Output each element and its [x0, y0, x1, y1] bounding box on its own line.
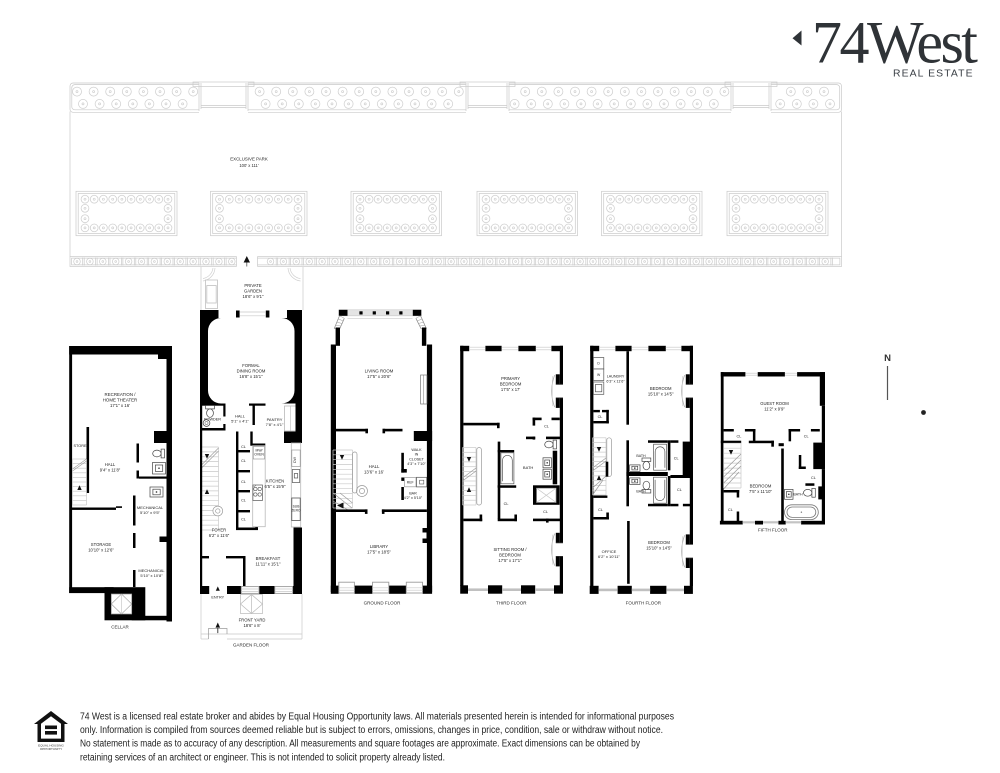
svg-text:FOYER: FOYER	[212, 528, 226, 533]
svg-text:74 West is a licensed real est: 74 West is a licensed real estate broker…	[80, 712, 674, 723]
svg-text:CL: CL	[241, 445, 246, 449]
svg-text:CL: CL	[598, 508, 603, 512]
svg-text:16’8" x 15’1": 16’8" x 15’1"	[239, 374, 263, 379]
svg-text:STORAGE: STORAGE	[91, 542, 112, 547]
svg-text:LIVING ROOM: LIVING ROOM	[365, 369, 394, 374]
svg-text:17’5" x 17’: 17’5" x 17’	[501, 387, 520, 392]
svg-text:CL: CL	[811, 476, 816, 480]
svg-text:11’11" x 15’1": 11’11" x 15’1"	[256, 561, 281, 566]
svg-text:REF: REF	[407, 481, 414, 485]
svg-text:DINING ROOM: DINING ROOM	[237, 368, 266, 373]
svg-text:POWDER: POWDER	[204, 418, 221, 422]
svg-text:ZERO: ZERO	[291, 509, 301, 513]
svg-text:18’6" x 9’1": 18’6" x 9’1"	[243, 294, 264, 299]
svg-text:CL: CL	[677, 488, 682, 492]
svg-text:17'1" x 16': 17'1" x 16'	[110, 403, 130, 408]
svg-text:GARDEN: GARDEN	[244, 288, 262, 293]
svg-text:BEDROOM: BEDROOM	[750, 484, 772, 489]
svg-text:THIRD FLOOR: THIRD FLOOR	[496, 601, 527, 606]
svg-text:BATH: BATH	[636, 454, 646, 458]
svg-text:HALL: HALL	[369, 464, 380, 469]
svg-text:GARDEN FLOOR: GARDEN FLOOR	[233, 643, 270, 648]
svg-text:CL: CL	[598, 415, 603, 419]
svg-text:6’3" x 11’6": 6’3" x 11’6"	[606, 379, 625, 383]
svg-text:5’10" x 9’5": 5’10" x 9’5"	[140, 510, 161, 515]
svg-text:7’8" x 4’1": 7’8" x 4’1"	[266, 422, 284, 427]
svg-text:RECREATION /: RECREATION /	[105, 392, 137, 397]
svg-text:4’2" x 5’10": 4’2" x 5’10"	[404, 496, 423, 500]
svg-text:4’3" x 7’10": 4’3" x 7’10"	[407, 462, 426, 466]
svg-text:EXCLUSIVE PARK: EXCLUSIVE PARK	[230, 157, 268, 162]
svg-text:only. Information is compiled: only. Information is compiled from sourc…	[80, 725, 663, 736]
svg-text:CL: CL	[241, 499, 246, 503]
svg-text:BREAKFAST: BREAKFAST	[256, 556, 281, 561]
svg-text:5’10" x 10’8": 5’10" x 10’8"	[140, 573, 163, 578]
svg-text:15’10" x 14’5": 15’10" x 14’5"	[646, 545, 672, 550]
svg-text:BATH: BATH	[523, 465, 533, 470]
svg-text:CL: CL	[736, 435, 741, 439]
svg-text:PRIMARY: PRIMARY	[501, 376, 520, 381]
svg-text:BEDROOM: BEDROOM	[650, 386, 672, 391]
svg-text:9’4" x 11’8": 9’4" x 11’8"	[100, 467, 121, 472]
svg-text:7’5" x 11’10": 7’5" x 11’10"	[749, 489, 772, 494]
svg-text:FOURTH FLOOR: FOURTH FLOOR	[626, 601, 662, 606]
svg-text:LAUNDRY: LAUNDRY	[607, 375, 625, 379]
svg-text:17’5" x 20’6": 17’5" x 20’6"	[367, 374, 391, 379]
svg-text:CELLAR: CELLAR	[111, 625, 129, 630]
svg-text:BATH: BATH	[793, 493, 803, 497]
svg-text:No statement is made as to acc: No statement is made as to accuracy of a…	[80, 739, 640, 750]
svg-text:ENTRY: ENTRY	[211, 596, 224, 600]
svg-text:SITTING ROOM /: SITTING ROOM /	[493, 547, 527, 552]
svg-text:BEDROOM: BEDROOM	[648, 540, 670, 545]
svg-text:HOME THEATER: HOME THEATER	[103, 398, 137, 403]
svg-text:BEDROOM: BEDROOM	[500, 381, 522, 386]
svg-text:18’6" x 8’: 18’6" x 8’	[243, 623, 260, 628]
svg-text:13’6" x 16’: 13’6" x 16’	[364, 470, 384, 475]
svg-text:CL: CL	[728, 508, 733, 512]
svg-text:CL: CL	[544, 425, 549, 429]
svg-text:DW: DW	[293, 456, 297, 462]
svg-text:BEDROOM: BEDROOM	[499, 552, 521, 557]
svg-text:N: N	[884, 353, 891, 364]
svg-text:100' x 111': 100' x 111'	[239, 163, 259, 168]
svg-text:CL: CL	[674, 457, 679, 461]
svg-text:FORMAL: FORMAL	[242, 363, 260, 368]
svg-text:CLOSET: CLOSET	[409, 457, 425, 461]
svg-text:KITCHEN: KITCHEN	[266, 479, 284, 484]
svg-text:HALL: HALL	[105, 462, 116, 467]
svg-text:6’2" x 11’6": 6’2" x 11’6"	[209, 533, 230, 538]
svg-text:CL: CL	[241, 480, 246, 484]
svg-text:CL: CL	[804, 435, 809, 439]
svg-text:IN: IN	[415, 453, 419, 457]
svg-text:BAR: BAR	[409, 492, 417, 496]
svg-text:BATH: BATH	[636, 490, 646, 494]
svg-text:17’5" x 18’5": 17’5" x 18’5"	[367, 550, 391, 555]
svg-text:PRIVATE: PRIVATE	[244, 283, 262, 288]
svg-text:11’2" x 9’9": 11’2" x 9’9"	[764, 406, 785, 411]
svg-text:CL: CL	[241, 459, 246, 463]
svg-text:STORE: STORE	[73, 444, 86, 448]
svg-text:WALK: WALK	[411, 448, 422, 452]
svg-text:74West: 74West	[812, 10, 978, 76]
svg-text:FIFTH FLOOR: FIFTH FLOOR	[758, 528, 788, 533]
svg-text:5’1" x 4’1": 5’1" x 4’1"	[231, 419, 249, 424]
svg-text:REAL ESTATE: REAL ESTATE	[893, 69, 974, 80]
svg-text:15’10" x 14’5": 15’10" x 14’5"	[648, 391, 674, 396]
svg-text:CL: CL	[543, 510, 548, 514]
svg-text:6’2" x 10’11": 6’2" x 10’11"	[598, 554, 620, 559]
svg-text:6’5" x 15’9": 6’5" x 15’9"	[265, 484, 286, 489]
svg-text:10’10" x 12’6": 10’10" x 12’6"	[88, 547, 114, 552]
svg-text:FRONT YARD: FRONT YARD	[239, 618, 266, 623]
svg-text:CL: CL	[241, 518, 246, 522]
svg-text:GROUND FLOOR: GROUND FLOOR	[364, 601, 402, 606]
svg-text:CL: CL	[504, 502, 509, 506]
svg-text:17’5" x 17’1": 17’5" x 17’1"	[498, 558, 522, 563]
svg-text:OPPORTUNITY: OPPORTUNITY	[40, 747, 62, 751]
svg-text:OVEN: OVEN	[254, 453, 264, 457]
svg-text:GUEST ROOM: GUEST ROOM	[760, 401, 789, 406]
svg-text:retaining services of an archi: retaining services of an architect or en…	[80, 752, 445, 763]
svg-text:LIBRARY: LIBRARY	[370, 544, 388, 549]
